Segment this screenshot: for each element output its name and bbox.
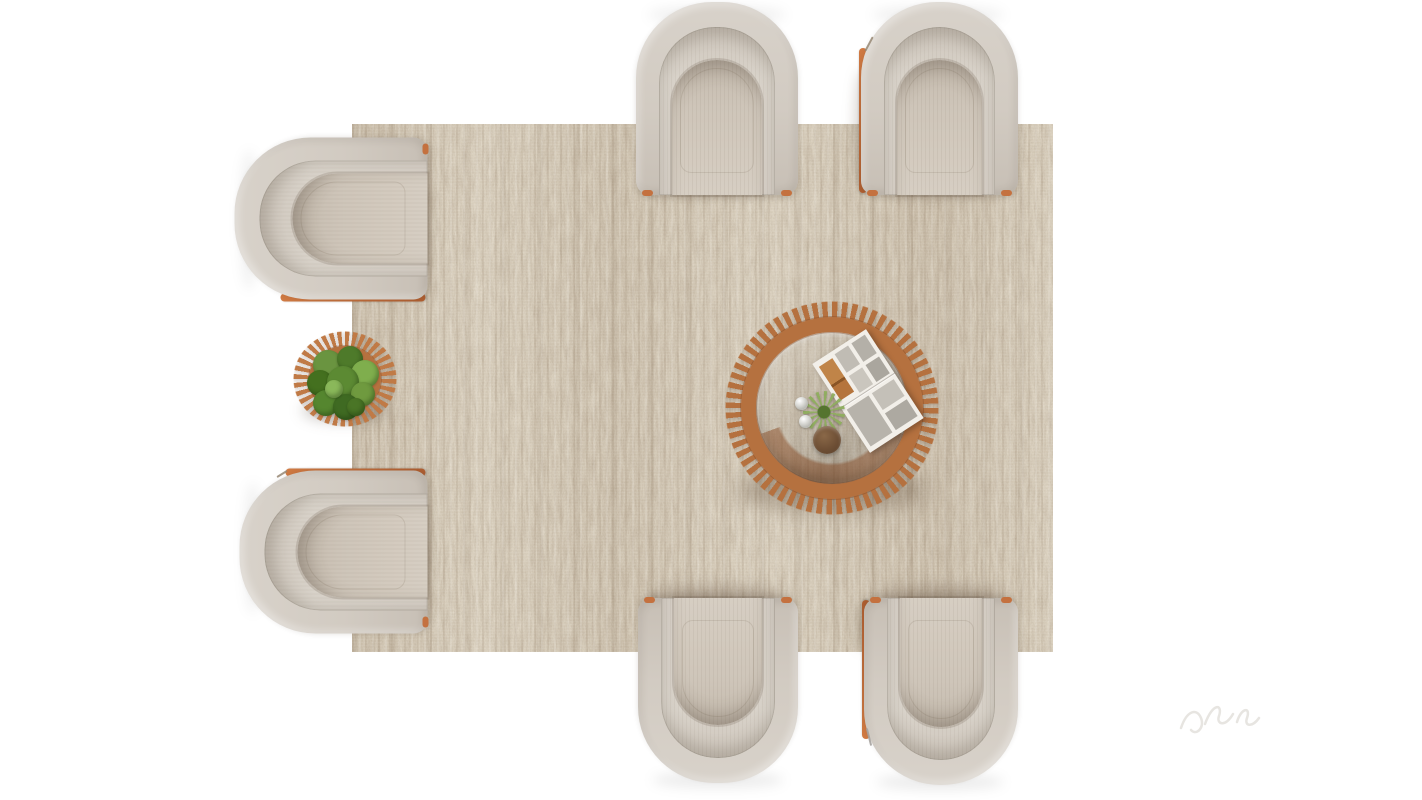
plant-leaf (325, 380, 343, 398)
orange-trim-tip (867, 190, 878, 196)
orange-trim-tip (870, 597, 881, 603)
coffee-table (725, 301, 939, 515)
orange-trim-tip (642, 190, 653, 196)
area-rug (352, 124, 1053, 652)
chair-cushion-seam (680, 68, 754, 173)
scene-canvas (0, 0, 1422, 800)
chair-cushion-seam (301, 182, 406, 256)
armchair-bottom-right (864, 598, 1018, 785)
rug-striation-overlay (352, 124, 1053, 652)
armchair-bottom-center (638, 598, 798, 783)
chair-cushion-seam (682, 620, 754, 717)
glass-sphere (799, 415, 812, 428)
armchair-left-top (235, 138, 428, 300)
render-watermark (1175, 690, 1275, 750)
glass-sphere (795, 397, 808, 410)
side-table-plant (303, 342, 381, 422)
chair-cushion-seam (306, 515, 406, 590)
orange-trim-tip (644, 597, 655, 603)
orange-trim-tip (423, 144, 429, 155)
plant-leaf (347, 398, 365, 416)
clay-pot (813, 426, 841, 454)
orange-trim-tip (423, 617, 429, 628)
chair-cushion-seam (905, 68, 974, 173)
armchair-left-bottom (240, 471, 428, 634)
orange-trim-tip (781, 597, 792, 603)
armchair-top-right (861, 2, 1018, 195)
orange-trim-tip (1001, 597, 1012, 603)
orange-trim-tip (1001, 190, 1012, 196)
armchair-top-center (636, 2, 798, 195)
chair-cushion-seam (908, 620, 974, 719)
orange-trim-tip (781, 190, 792, 196)
